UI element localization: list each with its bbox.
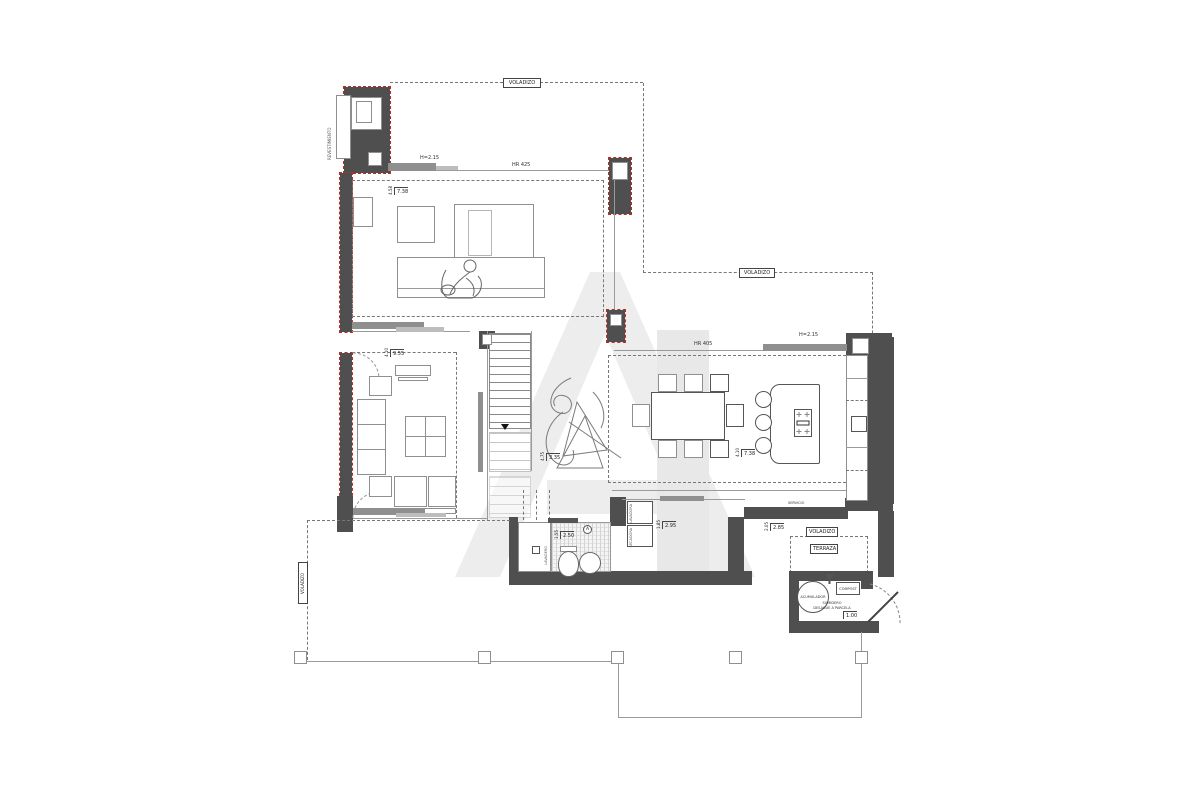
dining-table (651, 392, 725, 440)
dining-chair (710, 440, 729, 458)
lounge-chair-person (438, 252, 500, 304)
understair-dash-3 (549, 490, 550, 520)
bedroom-width: 7.38 (394, 187, 408, 195)
bedroom-east-pillar-box (612, 162, 628, 180)
kitchen-sink (851, 416, 867, 432)
sideboard-shelf (398, 377, 428, 381)
bathroom-depth: 1.55 (554, 530, 559, 539)
dining-chair (684, 440, 703, 458)
kitchen-south-line (612, 490, 868, 491)
overhang-tag-service: VOLADIZO (806, 527, 838, 537)
bedroom-dimension: 4.58 7.38 (388, 186, 408, 195)
dining-chair (710, 374, 729, 392)
dining-chair (726, 404, 744, 427)
washer-label: LAVADORA (629, 504, 633, 523)
chimney-hatch-inner (356, 101, 372, 123)
understair-dash-1 (523, 490, 524, 520)
living-depth: 4.10 (384, 348, 389, 357)
terrace-column (294, 651, 307, 664)
terrace-depth: 2.05 (764, 522, 769, 531)
overhang-tag-top: VOLADIZO (503, 78, 541, 88)
sofa (428, 476, 456, 507)
chimney-flue (336, 95, 351, 159)
overhang-tag-right: VOLADIZO (739, 268, 775, 278)
sofa (357, 399, 386, 475)
drain-funnel-icon (824, 573, 836, 587)
overhang-dash-right (643, 83, 644, 273)
staircase-under-dash (489, 476, 531, 518)
counter-divider-1 (846, 378, 868, 379)
bedroom-west-wall (340, 173, 352, 332)
bedroom-se-pillar-box (610, 314, 622, 326)
machine-width: 1.00 (843, 611, 857, 619)
cooktop (794, 409, 812, 437)
service-east-wall (728, 517, 744, 579)
living-slider-b (396, 513, 446, 517)
plot-line-bottom (618, 717, 862, 718)
terrace-dimension: 2.05 2.85 (764, 522, 784, 531)
kitchen-width: 7.38 (741, 449, 755, 457)
terrace-column (729, 651, 742, 664)
stair-railing (478, 392, 483, 472)
bedroom-window-sill (388, 163, 436, 171)
plot-line-south (307, 661, 618, 662)
terrace-east-wall (878, 511, 894, 577)
sofa (394, 476, 427, 507)
bathroom-mirror (548, 518, 578, 523)
dining-chair (684, 374, 703, 392)
washbasin (579, 552, 601, 574)
dining-chair (632, 404, 650, 427)
kitchen-ne-corner-box (852, 338, 869, 354)
kitchen-window-ref: HR 405 (694, 341, 712, 347)
water-heater-label: ACUMULADOR (800, 595, 825, 599)
staircase-steps-upper-dashed (489, 432, 531, 472)
terrace-width: 2.85 (770, 523, 784, 531)
dryer-label: SECADORA (629, 528, 633, 547)
living-sw-corner-wall (337, 496, 353, 532)
terrace-column (478, 651, 491, 664)
counter-divider-4 (846, 470, 868, 471)
kitchen-sill-height: H=2.15 (799, 332, 818, 338)
south-wall (509, 571, 752, 585)
coffee-table (405, 416, 446, 457)
drain-label-1: SUMIDERO (806, 601, 858, 605)
bathroom-width: 2.50 (560, 531, 574, 539)
exterior-door (866, 584, 902, 626)
bar-stool (755, 437, 772, 454)
living-west-wall (340, 353, 352, 520)
armchair (369, 476, 392, 497)
floor-drain (532, 546, 540, 554)
hall-width: 3.35 (546, 453, 560, 461)
terrace-north-wall (744, 507, 848, 519)
living-dimension: 4.10 9.55 (384, 348, 404, 357)
service-dimension: 1.85 2.95 (656, 520, 676, 529)
bedroom-wardrobe (397, 206, 435, 243)
counter-divider-2 (846, 400, 868, 401)
bar-stool (755, 414, 772, 431)
hall-sculpture (533, 372, 638, 477)
wall-niche (368, 152, 382, 166)
bedroom-slider-b (396, 327, 444, 332)
terrace-tag: TERRAZA (810, 544, 838, 554)
drain-label-2: DESAGÜE A PARCELA (800, 606, 864, 610)
stair-right-line (531, 331, 532, 471)
service-depth: 1.85 (656, 520, 661, 529)
armchair (369, 376, 392, 396)
bedroom-east-glazing (614, 176, 615, 332)
cladding-label: REVESTIMIENTO (327, 98, 332, 160)
floor-plan-canvas: REVESTIMIENTO VOLADIZO H=2.15 HR 425 4.5… (0, 0, 1200, 800)
living-south-line (353, 518, 488, 519)
dining-chair (658, 440, 677, 458)
bedroom-sill-height: H=2.15 (420, 155, 439, 161)
dining-chair (658, 374, 677, 392)
kitchen-window-sill (763, 344, 847, 351)
bath-key-circle: A (583, 525, 592, 534)
living-width: 9.55 (390, 349, 404, 357)
service-width: 2.95 (662, 521, 676, 529)
service-label: SERVICIO (788, 501, 804, 505)
kitchen-dimension: 4.10 7.38 (735, 448, 755, 457)
east-wall (868, 337, 894, 504)
overhang-tag-left: VOLADIZO (298, 562, 308, 604)
stair-left-line (487, 331, 488, 521)
toilet (558, 551, 579, 577)
terrace-column (611, 651, 624, 664)
understair-dash-2 (536, 490, 537, 520)
living-dash-right (456, 352, 457, 518)
hall-depth: 4.75 (540, 452, 545, 461)
laundry-room-label: LAVADERO (544, 546, 548, 565)
kitchen-depth: 4.10 (735, 448, 740, 457)
counter-divider-3 (846, 447, 868, 448)
compost-box: COMPOST (836, 582, 860, 595)
bathroom-dimension: 1.55 2.50 (554, 530, 574, 539)
service-window (660, 496, 704, 501)
plot-line-step (618, 661, 619, 718)
bedroom-window-ref: HR 425 (512, 162, 530, 168)
hall-dimension: 4.75 3.35 (540, 452, 560, 461)
bar-stool (755, 391, 772, 408)
bedroom-shelf (353, 197, 373, 227)
bed-pillow (468, 210, 492, 256)
staircase-steps (489, 333, 531, 429)
bedroom-depth: 4.58 (388, 186, 393, 195)
sideboard (395, 365, 431, 376)
service-divider-wall (610, 497, 626, 526)
machine-dimension: 1.00 (842, 611, 857, 619)
stair-pillar-box (482, 334, 492, 345)
bedroom-window-leaf (436, 166, 458, 170)
terrace-dash-top (307, 520, 510, 521)
terrace-column (855, 651, 868, 664)
stair-direction-arrow (501, 424, 509, 430)
plot-line-east (861, 632, 862, 718)
